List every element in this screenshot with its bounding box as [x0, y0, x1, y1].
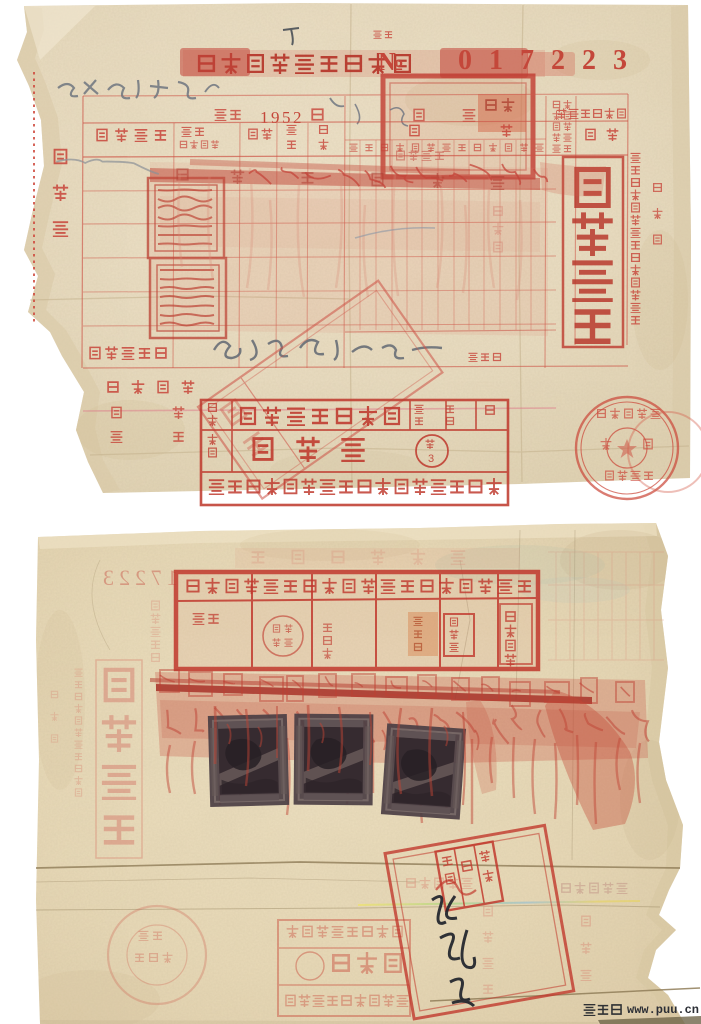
svg-text:3: 3	[428, 453, 434, 465]
svg-text:№: №	[378, 47, 404, 76]
svg-text:17223: 17223	[98, 565, 178, 590]
svg-text:www.puu.cn: www.puu.cn	[627, 1003, 699, 1017]
svg-text:017223: 017223	[458, 45, 644, 76]
svg-text:1952: 1952	[260, 108, 304, 127]
